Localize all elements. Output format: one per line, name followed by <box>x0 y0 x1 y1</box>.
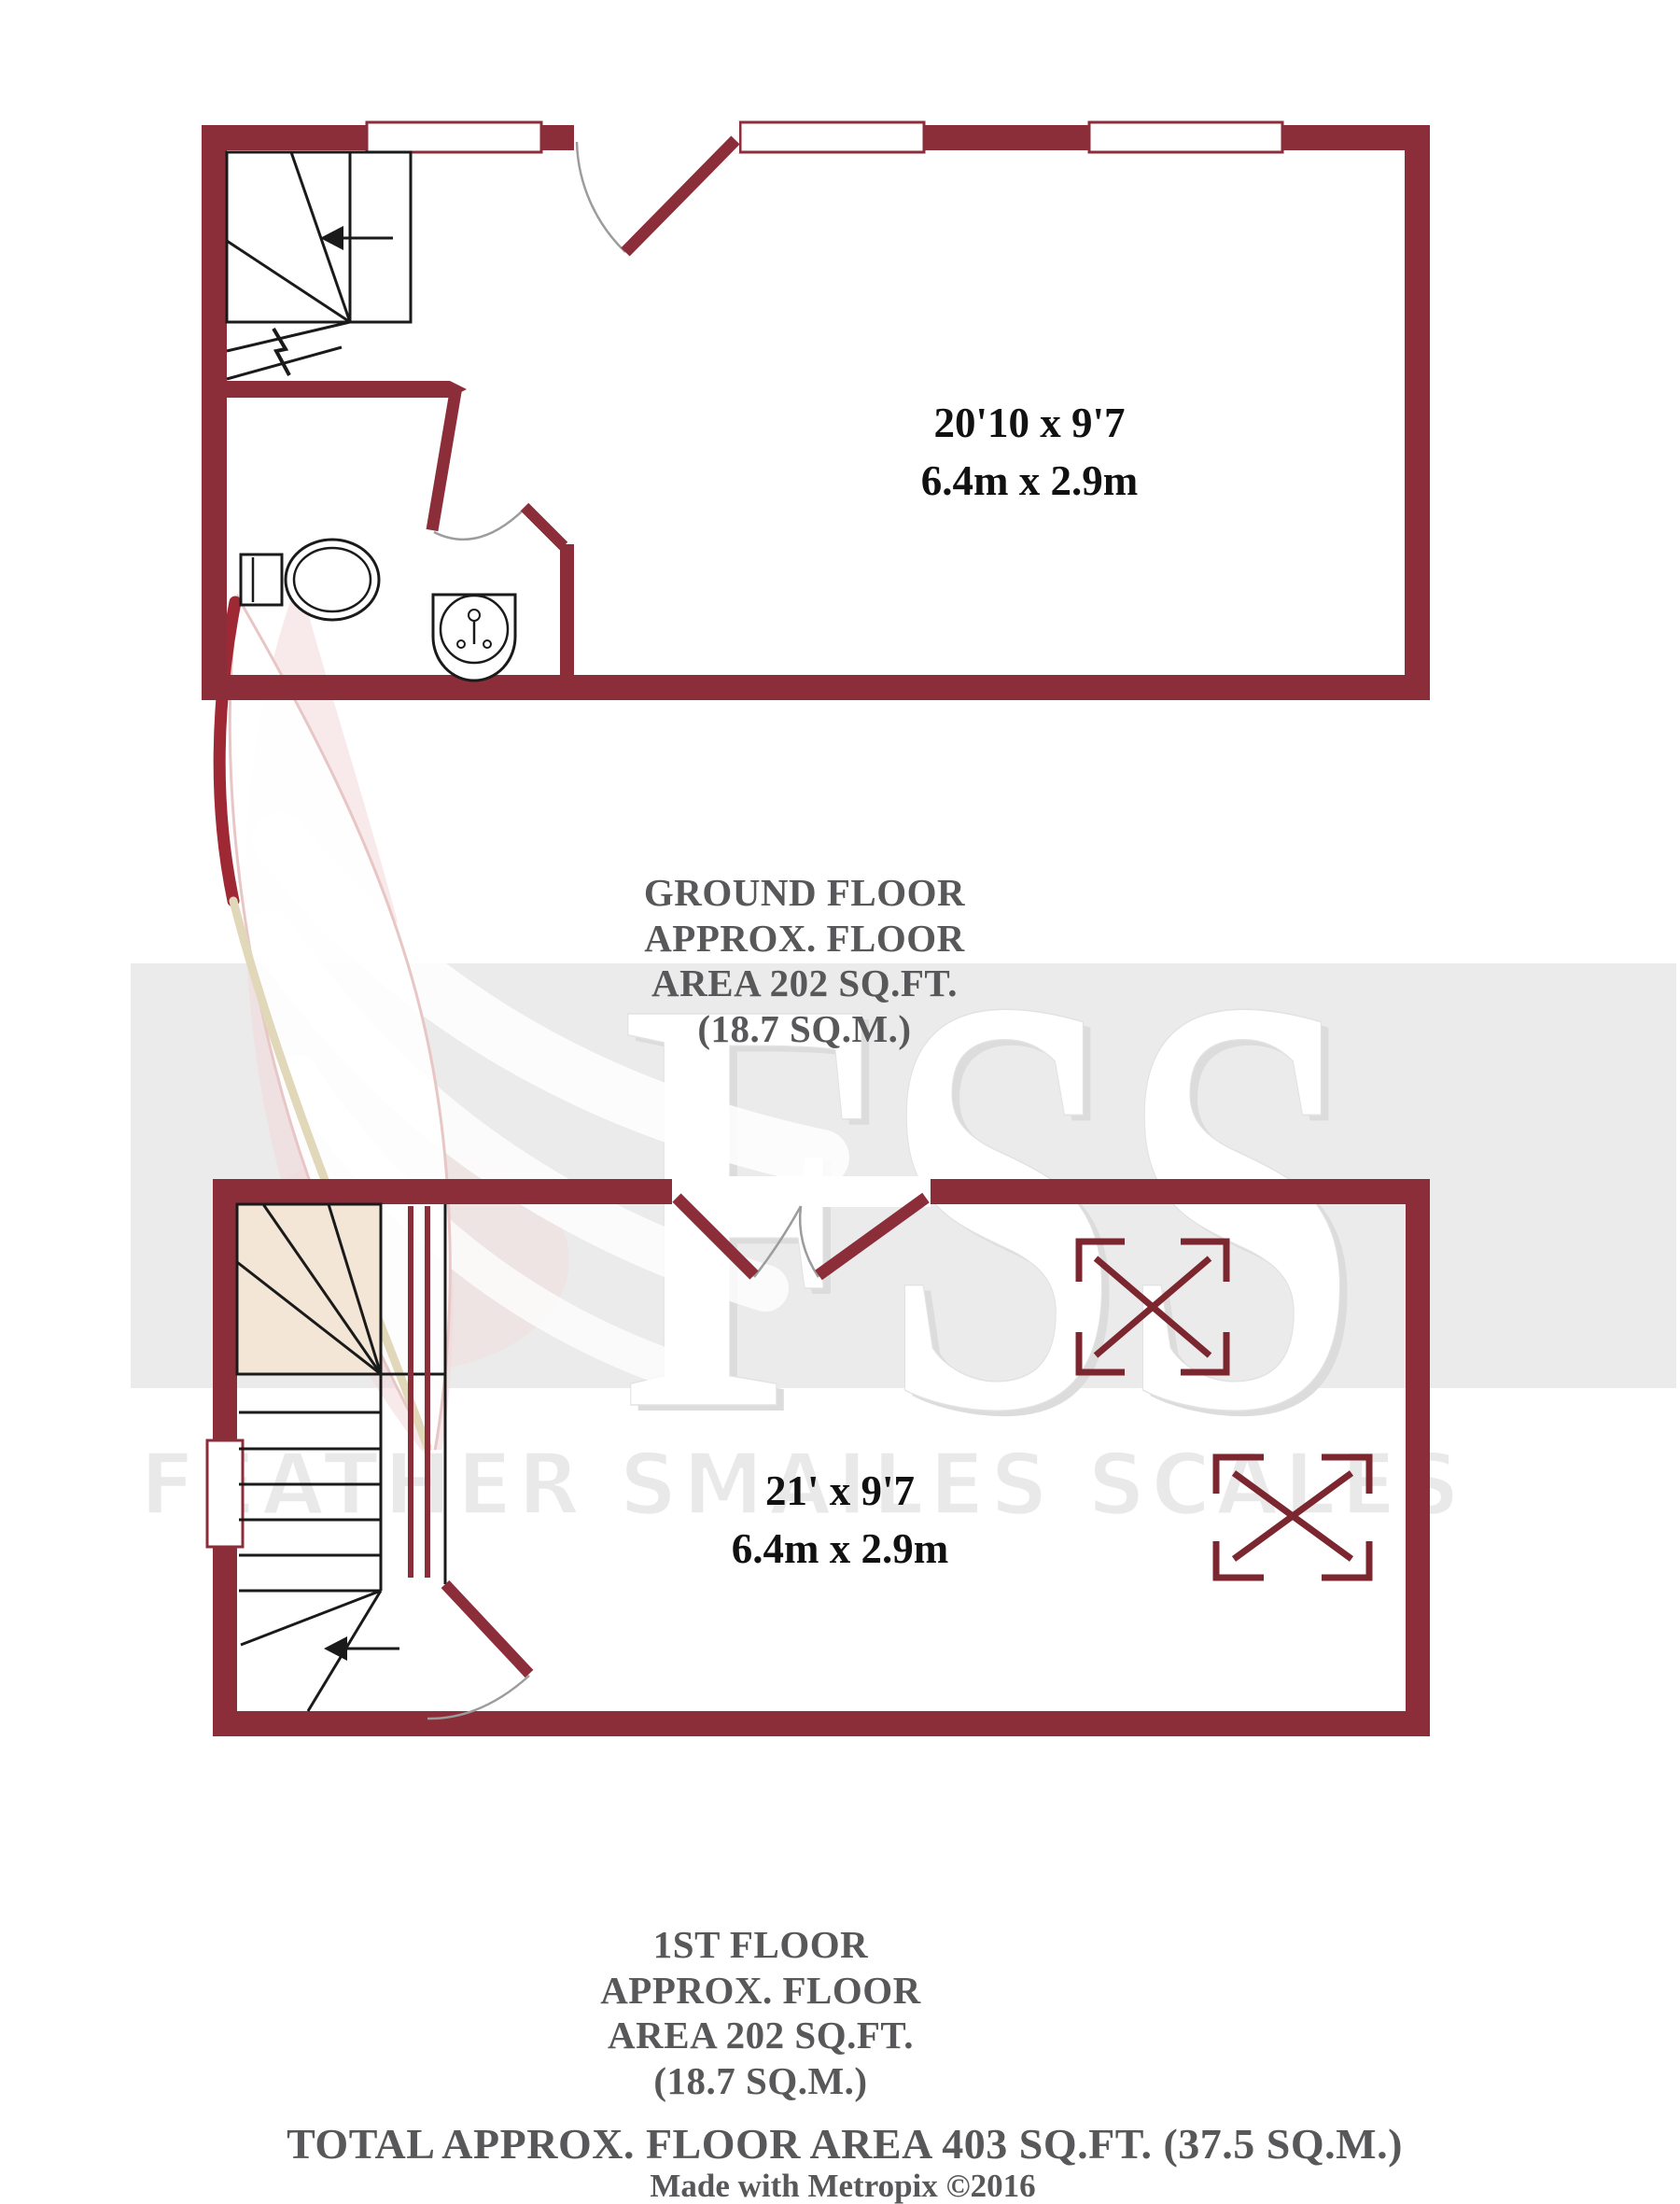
door-swing-arc <box>577 142 625 252</box>
ground-floor-label-line: AREA 202 SQ.FT. <box>644 961 965 1006</box>
first-floor-label-line: 1ST FLOOR <box>600 1922 921 1968</box>
floorplan-page: FSS FSS FEATHER SMAILES SCALES <box>0 0 1680 2204</box>
door-leaf <box>445 1584 529 1674</box>
ground-floor-label-line: APPROX. FLOOR <box>644 916 965 962</box>
stair-direction-arrow <box>324 1636 347 1661</box>
first-floor-label: 1ST FLOOR APPROX. FLOOR AREA 202 SQ.FT. … <box>600 1922 921 2103</box>
ff-dimensions-metric: 6.4m x 2.9m <box>732 1525 948 1572</box>
sink-icon <box>433 595 515 681</box>
door-leaf <box>625 140 735 252</box>
gf-stairs <box>227 152 411 379</box>
ground-floor-label-line: (18.7 SQ.M.) <box>644 1006 965 1052</box>
ff-stairs-door <box>427 1584 529 1719</box>
first-floor-label-line: AREA 202 SQ.FT. <box>600 2013 921 2058</box>
watermark: FSS FSS FEATHER SMAILES SCALES <box>131 579 1676 1540</box>
ff-window <box>207 1440 243 1547</box>
gf-window-3 <box>1089 122 1282 152</box>
first-floor-label-line: APPROX. FLOOR <box>600 1968 921 2014</box>
gf-window-2 <box>740 122 924 152</box>
gf-entrance-door <box>574 121 739 252</box>
wc-door-leaf <box>525 507 564 546</box>
gf-walls <box>202 125 1430 700</box>
ground-floor-label: GROUND FLOOR APPROX. FLOOR AREA 202 SQ.F… <box>644 870 965 1051</box>
gf-dimensions-metric: 6.4m x 2.9m <box>921 457 1138 504</box>
stair-winder <box>237 1204 381 1374</box>
wc-door-swing-arc <box>434 509 525 540</box>
toilet-icon <box>241 540 379 620</box>
ground-floor-plan: 20'10 x 9'7 6.4m x 2.9m <box>202 121 1430 700</box>
first-floor-label-line: (18.7 SQ.M.) <box>600 2058 921 2104</box>
total-area-label: TOTAL APPROX. FLOOR AREA 403 SQ.FT. (37.… <box>287 2119 1403 2169</box>
floorplan-graphic: FSS FSS FEATHER SMAILES SCALES <box>0 0 1680 2204</box>
ff-dimensions-imperial: 21' x 9'7 <box>765 1467 915 1514</box>
metropix-credit: Made with Metropix ©2016 <box>650 2168 1035 2204</box>
gf-window-1 <box>367 122 541 152</box>
gf-dimensions-imperial: 20'10 x 9'7 <box>933 400 1125 446</box>
ground-floor-label-line: GROUND FLOOR <box>644 870 965 916</box>
